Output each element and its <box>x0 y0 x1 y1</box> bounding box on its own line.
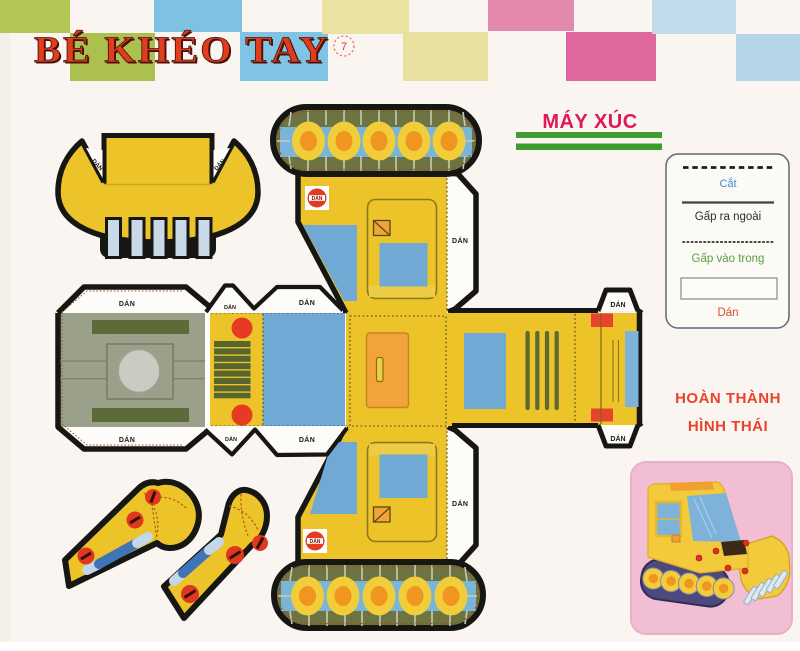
svg-text:DÁN: DÁN <box>312 195 323 202</box>
svg-text:DÁN: DÁN <box>299 298 315 307</box>
svg-text:DÁN: DÁN <box>610 434 625 443</box>
svg-text:DÁN: DÁN <box>452 499 468 508</box>
svg-text:Gấp ra ngoài: Gấp ra ngoài <box>695 211 762 223</box>
svg-text:DÁN: DÁN <box>224 304 236 311</box>
svg-text:BÉ KHÉO TAY: BÉ KHÉO TAY <box>34 29 330 71</box>
svg-text:Cắt: Cắt <box>719 177 736 190</box>
svg-text:DÁN: DÁN <box>299 435 315 444</box>
svg-text:HÌNH THÁI: HÌNH THÁI <box>688 418 768 435</box>
svg-text:Gấp vào trong: Gấp vào trong <box>692 253 765 265</box>
svg-text:DÁN: DÁN <box>452 236 468 245</box>
svg-text:Dán: Dán <box>717 307 738 319</box>
svg-text:HOÀN THÀNH: HOÀN THÀNH <box>675 390 781 407</box>
svg-text:DÁN: DÁN <box>225 436 237 443</box>
svg-text:DÁN: DÁN <box>610 300 625 309</box>
svg-text:DÁN: DÁN <box>119 299 135 308</box>
svg-text:7: 7 <box>341 41 347 53</box>
svg-text:MÁY XÚC: MÁY XÚC <box>542 109 637 133</box>
svg-text:DÁN: DÁN <box>119 435 135 444</box>
svg-text:DÁN: DÁN <box>310 538 321 545</box>
